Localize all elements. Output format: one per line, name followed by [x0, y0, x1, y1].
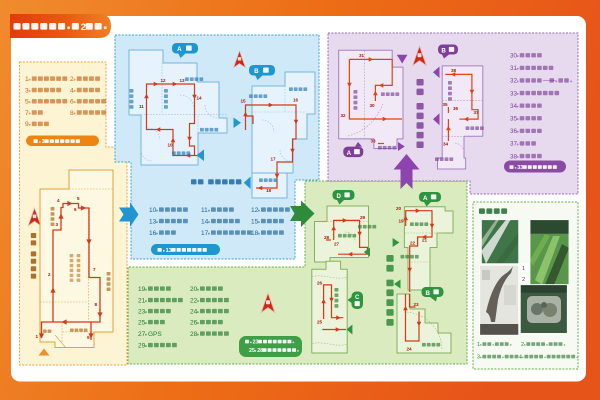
svg-text:35: 35	[443, 102, 449, 107]
svg-text:36: 36	[453, 106, 459, 111]
svg-text:37: 37	[510, 141, 518, 148]
svg-text:21: 21	[422, 238, 428, 243]
svg-text:9: 9	[87, 335, 90, 340]
svg-text:18: 18	[251, 230, 259, 237]
svg-text:17: 17	[201, 230, 209, 237]
svg-text:D: D	[336, 193, 341, 200]
svg-text:37: 37	[474, 110, 480, 115]
svg-text:6: 6	[70, 99, 74, 106]
svg-text:23: 23	[138, 309, 146, 316]
svg-text:9: 9	[25, 121, 29, 128]
svg-text:3: 3	[42, 139, 45, 145]
svg-text:4: 4	[70, 87, 74, 94]
svg-text:36: 36	[510, 128, 518, 135]
svg-text:18: 18	[266, 188, 272, 193]
svg-text:17: 17	[271, 157, 277, 162]
svg-text:14: 14	[197, 96, 203, 101]
svg-text:34: 34	[443, 142, 449, 147]
svg-text:12: 12	[161, 78, 167, 83]
svg-text:38: 38	[510, 153, 518, 160]
svg-text:20: 20	[396, 206, 402, 211]
svg-text:24: 24	[190, 309, 198, 316]
svg-text:25: 25	[317, 320, 323, 325]
svg-text:13: 13	[149, 219, 157, 226]
svg-text:15: 15	[251, 219, 259, 226]
svg-text:16: 16	[293, 98, 299, 103]
svg-text:25: 25	[249, 348, 255, 354]
svg-text:5: 5	[25, 99, 29, 106]
svg-text:8: 8	[70, 110, 74, 117]
svg-text:2: 2	[70, 76, 74, 83]
svg-text:31: 31	[510, 65, 518, 72]
svg-text:33: 33	[510, 90, 518, 97]
svg-text:15: 15	[241, 99, 247, 104]
svg-text:11: 11	[139, 104, 144, 109]
svg-text:1: 1	[477, 342, 480, 348]
svg-text:33: 33	[517, 165, 523, 171]
svg-text:19: 19	[399, 219, 405, 224]
svg-text:10: 10	[149, 207, 157, 214]
svg-text:20: 20	[190, 286, 198, 293]
svg-text:30: 30	[510, 53, 518, 60]
svg-text:26: 26	[317, 281, 323, 286]
svg-text:28: 28	[257, 348, 263, 354]
svg-text:C: C	[355, 295, 360, 301]
svg-text:12: 12	[251, 207, 259, 214]
svg-text:19: 19	[138, 286, 146, 293]
svg-text:7: 7	[93, 267, 96, 272]
svg-text:4: 4	[519, 355, 522, 361]
svg-text:2: 2	[522, 277, 525, 283]
svg-text:3: 3	[477, 355, 480, 361]
svg-text:5: 5	[77, 196, 80, 201]
svg-text:29: 29	[360, 215, 366, 220]
svg-text:28: 28	[190, 331, 198, 338]
svg-text:A: A	[347, 150, 352, 157]
svg-text:7: 7	[25, 110, 29, 117]
svg-text:3: 3	[25, 87, 29, 94]
svg-text:35: 35	[510, 116, 518, 123]
svg-text:22: 22	[190, 298, 198, 305]
svg-text:11: 11	[201, 207, 208, 214]
svg-text:24: 24	[407, 347, 413, 352]
svg-text:4: 4	[57, 198, 60, 203]
svg-text:10: 10	[168, 143, 174, 148]
svg-text:22: 22	[410, 241, 416, 246]
svg-text:2: 2	[521, 342, 524, 348]
svg-text:25: 25	[138, 320, 146, 327]
svg-text:A: A	[423, 195, 428, 202]
svg-text:28: 28	[324, 235, 330, 240]
svg-text:1: 1	[36, 334, 39, 339]
svg-text:14: 14	[201, 219, 209, 226]
svg-text:32: 32	[510, 78, 518, 85]
svg-text:GPS: GPS	[148, 331, 162, 338]
svg-text:6: 6	[74, 207, 77, 212]
svg-text:32: 32	[341, 113, 347, 118]
svg-text:30: 30	[370, 103, 376, 108]
svg-text:33: 33	[371, 139, 377, 144]
svg-text:21: 21	[138, 298, 146, 305]
svg-text:3: 3	[56, 222, 59, 227]
svg-text:2: 2	[48, 272, 51, 277]
svg-text:38: 38	[451, 68, 457, 73]
svg-text:13: 13	[166, 248, 172, 254]
svg-text:1: 1	[522, 266, 525, 272]
svg-text:26: 26	[190, 320, 198, 327]
svg-text:2: 2	[81, 22, 86, 33]
svg-text:B: B	[254, 68, 259, 75]
svg-text:34: 34	[510, 103, 518, 110]
svg-text:B: B	[441, 47, 446, 54]
svg-text:A: A	[177, 46, 182, 53]
svg-text:23: 23	[414, 302, 420, 307]
svg-text:B: B	[425, 290, 430, 297]
svg-text:16: 16	[149, 230, 157, 237]
svg-text:8: 8	[95, 302, 98, 307]
svg-text:1: 1	[25, 76, 29, 83]
svg-text:27: 27	[138, 331, 146, 338]
svg-text:23: 23	[253, 340, 259, 346]
svg-text:27: 27	[334, 242, 340, 247]
svg-text:13: 13	[180, 78, 186, 83]
svg-text:29: 29	[138, 343, 146, 350]
svg-text:31: 31	[359, 53, 365, 58]
